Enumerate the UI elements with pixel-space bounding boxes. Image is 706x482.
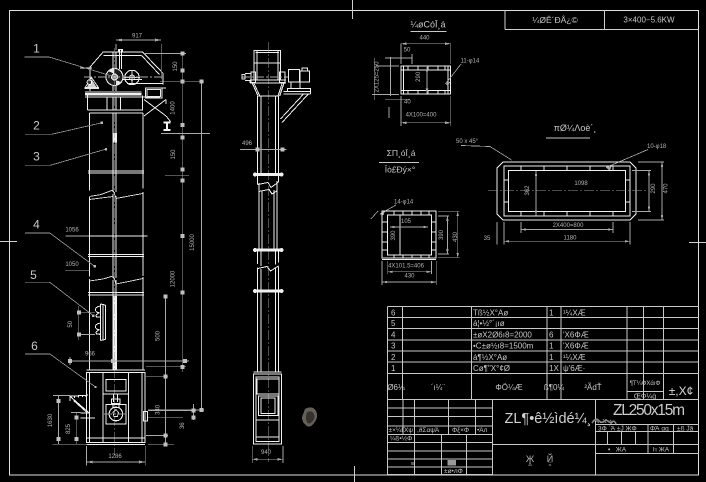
svg-text:3: 3	[391, 342, 396, 351]
svg-text:´ı¼¨: ´ı¼¨	[431, 383, 446, 392]
svg-text:ΦΆ αg: ΦΆ αg	[650, 426, 669, 433]
svg-text:ΣΠ¸óĪ¸á: ΣΠ¸óĪ¸á	[387, 148, 416, 158]
svg-text:±øX2Ø6ı8=2000: ±øX2Ø6ı8=2000	[473, 331, 532, 340]
svg-text:1X: 1X	[549, 364, 559, 373]
svg-text:ß¶0¼: ß¶0¼	[544, 383, 565, 392]
svg-text:Τß½X°Aø: Τß½X°Aø	[473, 308, 508, 317]
svg-text:50 x 45°: 50 x 45°	[456, 139, 479, 145]
svg-text:105: 105	[401, 219, 412, 225]
svg-text:±,X¢: ±,X¢	[669, 384, 694, 398]
svg-text:'Χ6ΦÆ: 'Χ6ΦÆ	[563, 331, 589, 340]
svg-text:10-φ18: 10-φ18	[647, 144, 667, 150]
svg-text:1180: 1180	[564, 236, 578, 242]
svg-text:12000: 12000	[171, 270, 177, 287]
svg-text:2: 2	[391, 353, 396, 362]
svg-text:,ðΣαψΆ: ,ðΣαψΆ	[417, 426, 440, 434]
svg-text:ψ'6Æ·: ψ'6Æ·	[563, 364, 585, 373]
svg-text:5: 5	[391, 319, 396, 328]
svg-text:¼ØÊ´ÐÅ¿©: ¼ØÊ´ÐÅ¿©	[532, 15, 578, 25]
svg-text:290: 290	[651, 183, 657, 194]
svg-text:1: 1	[33, 42, 40, 56]
svg-text:4: 4	[33, 218, 40, 232]
svg-text:ZL¶•ê½ìdé¼¸: ZL¶•ê½ìdé¼¸	[504, 411, 591, 427]
svg-text:1: 1	[391, 364, 396, 373]
svg-text:▪ ЖΑ: ▪ ЖΑ	[608, 447, 627, 454]
svg-text:3Φ ΄Ά ±Ĵ ЖΦ: 3Φ ΄Ά ±Ĵ ЖΦ	[598, 424, 637, 433]
svg-text:πØ¼Λοè´¸: πØ¼Λοè´¸	[554, 123, 597, 133]
svg-text:496: 496	[242, 141, 253, 147]
svg-text:940: 940	[261, 450, 272, 456]
svg-text:1050: 1050	[65, 262, 79, 268]
svg-text:Cø¶"X°¢Ø: Cø¶"X°¢Ø	[473, 364, 510, 373]
svg-text:ZL250x15m: ZL250x15m	[613, 402, 685, 419]
svg-text:2: 2	[33, 119, 40, 133]
svg-text:á¶½X°Aø: á¶½X°Aø	[473, 353, 507, 362]
svg-text:1630: 1630	[48, 413, 54, 427]
svg-text:ŒΦ¼ġ: ŒΦ¼ġ	[634, 394, 656, 401]
svg-text:35: 35	[484, 236, 491, 242]
svg-text:6: 6	[549, 331, 554, 340]
svg-text:4: 4	[391, 331, 396, 340]
svg-text:á¦•½°´¡ıø: á¦•½°´¡ıø	[473, 319, 505, 328]
svg-text:40: 40	[404, 100, 411, 106]
svg-text:Χψ: Χψ	[404, 427, 413, 434]
svg-text:1: 1	[549, 308, 554, 317]
svg-text:390: 390	[391, 230, 397, 241]
svg-text:430: 430	[404, 274, 415, 280]
svg-text:Ø6¼: Ø6¼	[387, 383, 405, 392]
svg-text:1400: 1400	[171, 101, 177, 115]
svg-text:14-φ14: 14-φ14	[394, 200, 414, 206]
svg-text:¶Τ¼ΦΧάıΦ: ¶Τ¼ΦΧάıΦ	[630, 380, 661, 387]
svg-text:1056: 1056	[65, 228, 79, 234]
svg-text:3: 3	[33, 150, 40, 164]
svg-text:'Χ6ΦÆ: 'Χ6ΦÆ	[563, 342, 589, 351]
svg-text:¹¼ΧÆ: ¹¼ΧÆ	[563, 353, 586, 362]
svg-text:340: 340	[155, 404, 161, 415]
svg-text:ΦÖ¼Æ: ΦÖ¼Æ	[495, 383, 522, 392]
svg-text:50: 50	[68, 320, 74, 327]
svg-text:•C±ø½ı8=1500m: •C±ø½ı8=1500m	[473, 342, 534, 351]
svg-text:1: 1	[549, 342, 554, 351]
svg-text:50: 50	[404, 48, 411, 54]
svg-text:Φξ×Φ: Φξ×Φ	[452, 427, 469, 434]
svg-text:430: 430	[453, 231, 459, 242]
svg-text:¼øСóĪ¸á: ¼øСóĪ¸á	[410, 20, 445, 30]
svg-text:966: 966	[85, 352, 96, 358]
svg-text:470: 470	[664, 183, 670, 194]
svg-text:1286: 1286	[108, 454, 122, 460]
svg-text:±ß Ĵã: ±ß Ĵã	[677, 424, 694, 433]
svg-text:1: 1	[549, 353, 554, 362]
svg-text:150: 150	[173, 61, 179, 72]
svg-text:5: 5	[30, 268, 37, 282]
svg-text:±ø•лΦ: ±ø•лΦ	[444, 468, 463, 475]
svg-text:3×400−5.6KW: 3×400−5.6KW	[623, 16, 675, 25]
svg-text:150: 150	[171, 149, 177, 160]
svg-text:290: 290	[416, 71, 422, 82]
svg-text:±×¼Γ: ±×¼Γ	[389, 427, 406, 434]
svg-text:917: 917	[132, 34, 143, 40]
svg-text:6: 6	[391, 308, 396, 317]
svg-text:6: 6	[31, 339, 38, 353]
svg-text:11-φ14: 11-φ14	[461, 59, 480, 65]
svg-text:2X125=250: 2X125=250	[375, 61, 381, 93]
svg-text:2X400=800: 2X400=800	[553, 223, 585, 229]
svg-text:15000: 15000	[190, 233, 196, 250]
svg-text:¹¼ΧÆ: ¹¼ΧÆ	[563, 308, 586, 317]
svg-text:1098: 1098	[574, 181, 588, 187]
svg-text:36: 36	[180, 422, 186, 429]
svg-text:4X100=400: 4X100=400	[406, 113, 438, 119]
svg-text:•Άл: •Άл	[477, 427, 488, 434]
svg-text:390: 390	[439, 229, 445, 240]
svg-text:440: 440	[419, 36, 430, 42]
svg-text:4X101.5=406: 4X101.5=406	[388, 264, 425, 270]
svg-text:²ÃdŤ: ²ÃdŤ	[584, 383, 601, 392]
svg-text:Īò£Đý×°: Īò£Đý×°	[385, 165, 416, 175]
svg-text:362: 362	[525, 185, 531, 196]
svg-text:825: 825	[66, 423, 72, 434]
svg-text:500: 500	[155, 330, 161, 341]
svg-text:ŀı ЖΑ: ŀı ЖΑ	[653, 447, 670, 454]
svg-text:¼ß•½Φ: ¼ß•½Φ	[390, 435, 412, 443]
